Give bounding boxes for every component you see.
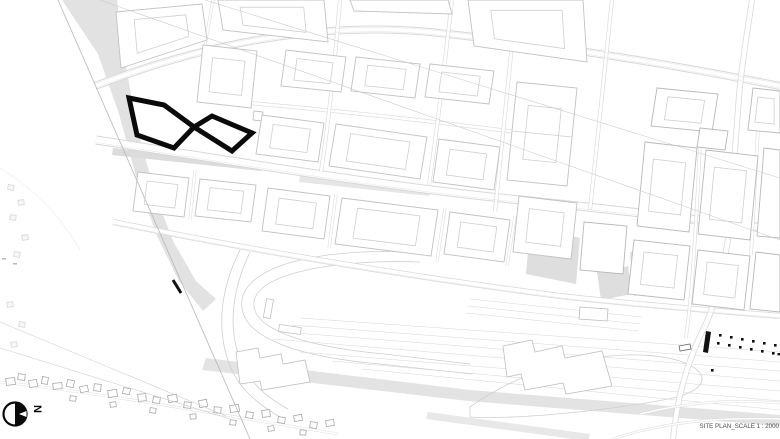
site-plan-drawing: N SITE PLAN_SCALE 1 : 2000: [0, 0, 780, 439]
north-letter: N: [31, 405, 43, 413]
scale-label: SITE PLAN_SCALE 1 : 2000: [700, 423, 780, 430]
site-plan-canvas: N SITE PLAN_SCALE 1 : 2000: [0, 0, 780, 439]
park-small-structures: [2, 185, 28, 348]
north-arrow-icon: N: [4, 403, 44, 426]
